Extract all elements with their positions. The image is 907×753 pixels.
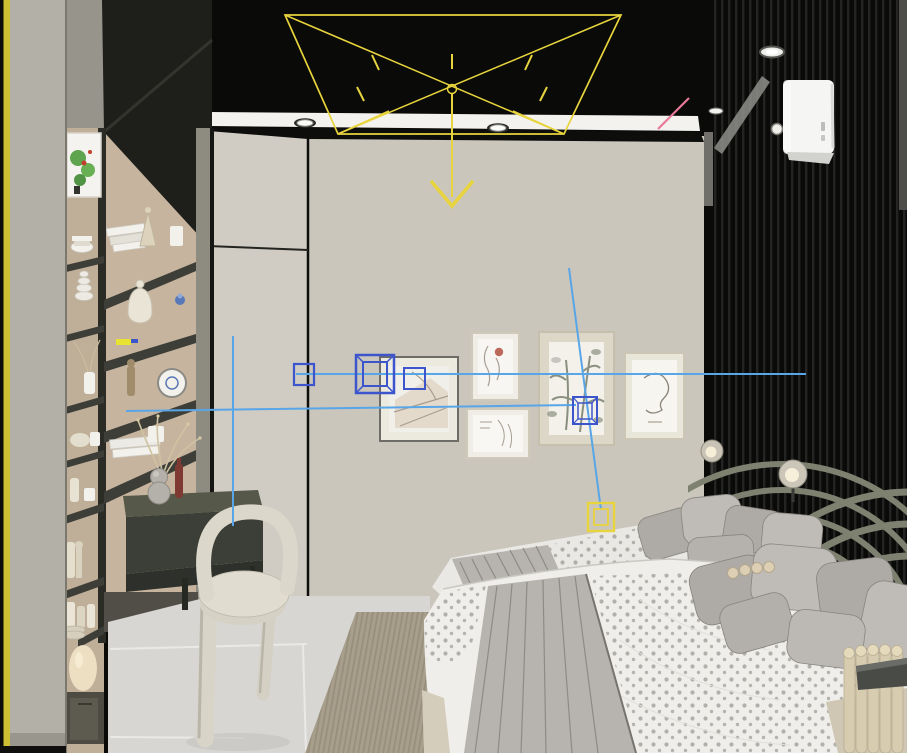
yellow-snap-marker bbox=[116, 339, 131, 345]
gallery-frame-abstract[interactable] bbox=[380, 357, 458, 441]
left-edge bbox=[0, 0, 67, 753]
viewport-edge-highlight bbox=[4, 0, 11, 746]
clock bbox=[158, 369, 186, 397]
scene-svg bbox=[0, 0, 907, 753]
gallery-frame-sketch[interactable] bbox=[467, 409, 529, 458]
ac-unit[interactable] bbox=[783, 80, 834, 164]
gallery-frame-floral[interactable] bbox=[472, 333, 519, 400]
side-table[interactable] bbox=[844, 645, 907, 753]
table-lamp bbox=[69, 645, 97, 691]
plant-artwork[interactable] bbox=[67, 133, 101, 197]
3d-viewport[interactable]: 3D modeling viewport: perspective render… bbox=[0, 0, 907, 753]
gallery-frame-face[interactable] bbox=[625, 353, 684, 439]
gallery-frame-botanical[interactable] bbox=[539, 332, 614, 445]
